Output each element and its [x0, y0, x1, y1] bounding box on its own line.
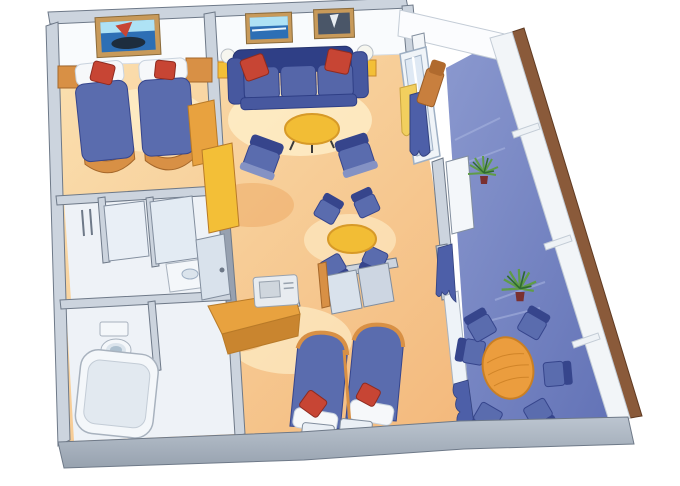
closet-door	[358, 263, 394, 307]
shower-glass	[104, 201, 149, 261]
suite-floor-plan-render	[0, 0, 680, 486]
red-accent-pillow	[324, 48, 352, 75]
wardrobe	[202, 143, 239, 233]
closet-door	[326, 270, 362, 314]
toilet-tank	[100, 322, 128, 336]
bed-spread	[75, 79, 135, 162]
dining-table	[328, 225, 376, 253]
wall-art-ship	[95, 14, 161, 57]
sofa-cushion	[280, 65, 316, 98]
plant-pot	[515, 292, 524, 301]
tv-vent	[284, 288, 294, 289]
sofa	[227, 45, 369, 110]
sink	[182, 269, 198, 279]
tv-vent	[283, 283, 293, 284]
bed-spread	[138, 77, 195, 156]
twin-bed	[136, 57, 196, 171]
tv	[253, 275, 299, 308]
table-top	[285, 114, 339, 144]
tub-basin	[83, 359, 151, 429]
art-sky	[250, 16, 288, 26]
chair-seat	[543, 361, 565, 387]
red-accent-pillow	[154, 60, 176, 80]
wall-art-ocean	[245, 12, 292, 44]
floor-plan-stage	[0, 0, 680, 486]
door-knob	[220, 268, 225, 273]
shower-glass	[150, 196, 198, 264]
plant-pot	[480, 176, 488, 184]
balcony-chair	[454, 337, 486, 365]
bathtub	[74, 348, 160, 440]
bathroom-door	[196, 234, 230, 300]
nightstand	[186, 58, 212, 82]
tv-screen	[259, 281, 280, 298]
window-curtain-blue	[436, 244, 456, 302]
balcony-chair	[543, 360, 573, 386]
wall-art-sailboat	[314, 8, 355, 38]
